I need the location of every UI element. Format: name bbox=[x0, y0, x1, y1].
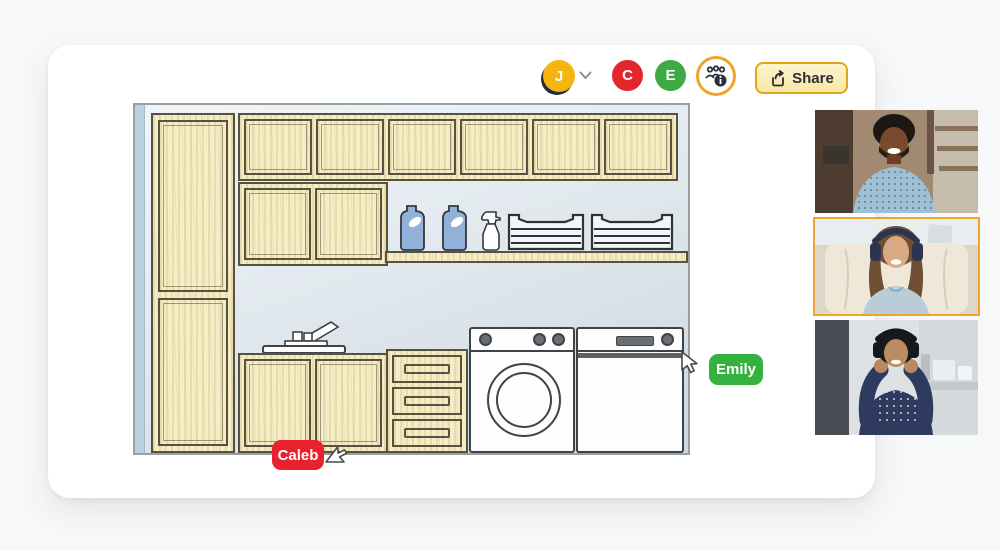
video-tile-participant-1[interactable] bbox=[815, 110, 978, 213]
washer-control-panel bbox=[471, 329, 573, 352]
upper-cabinet-door bbox=[244, 119, 312, 175]
washer-door-glass bbox=[496, 372, 552, 428]
chevron-down-icon[interactable] bbox=[579, 71, 592, 80]
participant-2-video bbox=[815, 219, 978, 314]
emily-cursor-icon bbox=[681, 351, 699, 374]
caleb-cursor-icon bbox=[325, 439, 350, 465]
dryer-display bbox=[616, 336, 654, 346]
upper-cabinet-door bbox=[388, 119, 456, 175]
design-canvas[interactable] bbox=[133, 103, 690, 455]
drawer bbox=[392, 419, 462, 447]
share-button[interactable]: Share bbox=[755, 62, 848, 94]
open-shelf[interactable] bbox=[385, 251, 688, 263]
whiteboard-card: J C E bbox=[48, 45, 875, 498]
spray-bottle-icon[interactable] bbox=[478, 209, 504, 251]
cursor-label-caleb: Caleb bbox=[272, 440, 324, 470]
share-button-label: Share bbox=[792, 70, 834, 87]
dryer[interactable] bbox=[576, 327, 684, 453]
avatar-e-initial: E bbox=[665, 67, 675, 84]
washer-knob bbox=[533, 333, 546, 346]
faucet-icon[interactable] bbox=[283, 317, 341, 347]
drawer bbox=[392, 387, 462, 415]
wall-cabinet-door bbox=[315, 188, 382, 260]
group-members-info-icon bbox=[703, 63, 729, 89]
avatar-j-initial: J bbox=[555, 68, 563, 85]
avatar-e[interactable]: E bbox=[655, 60, 686, 91]
avatar-c-initial: C bbox=[622, 67, 633, 84]
wall-cabinet[interactable] bbox=[238, 182, 388, 266]
share-icon bbox=[769, 70, 786, 87]
upper-cabinet-door bbox=[460, 119, 528, 175]
upper-cabinet-door bbox=[532, 119, 600, 175]
tall-cabinet-door-top bbox=[158, 120, 228, 292]
avatar-c[interactable]: C bbox=[612, 60, 643, 91]
video-tile-participant-2-active[interactable] bbox=[813, 217, 980, 316]
app-screen: J C E bbox=[0, 0, 1000, 550]
participant-1-video bbox=[815, 110, 978, 213]
drawer bbox=[392, 355, 462, 383]
drawer-unit[interactable] bbox=[386, 349, 468, 453]
washing-machine[interactable] bbox=[469, 327, 575, 453]
dryer-lid-line bbox=[578, 353, 682, 358]
tall-cabinet-door-bottom bbox=[158, 298, 228, 446]
washer-knob bbox=[552, 333, 565, 346]
wire-basket-icon[interactable] bbox=[590, 213, 674, 251]
detergent-jug-icon[interactable] bbox=[435, 203, 473, 251]
upper-cabinet-row[interactable] bbox=[238, 113, 678, 181]
washer-door bbox=[487, 363, 561, 437]
dryer-control-panel bbox=[578, 329, 682, 352]
wire-basket-icon[interactable] bbox=[507, 213, 585, 251]
wall-edge-strip bbox=[135, 105, 145, 453]
wall-cabinet-door bbox=[244, 188, 311, 260]
emily-name: Emily bbox=[716, 361, 756, 378]
sink-cabinet-door bbox=[244, 359, 311, 447]
sink-cabinet-door bbox=[315, 359, 382, 447]
dryer-knob bbox=[661, 333, 674, 346]
members-info-button[interactable] bbox=[696, 56, 736, 96]
washer-knob bbox=[479, 333, 492, 346]
video-tile-participant-3[interactable] bbox=[815, 320, 978, 435]
sink-cabinet[interactable] bbox=[238, 353, 388, 453]
detergent-jug-icon[interactable] bbox=[393, 203, 431, 251]
cursor-label-emily: Emily bbox=[709, 354, 763, 385]
avatar-j[interactable]: J bbox=[543, 60, 575, 92]
caleb-name: Caleb bbox=[278, 447, 319, 464]
upper-cabinet-door bbox=[604, 119, 672, 175]
upper-cabinet-door bbox=[316, 119, 384, 175]
participant-3-video bbox=[815, 320, 978, 435]
tall-cabinet[interactable] bbox=[151, 113, 235, 453]
